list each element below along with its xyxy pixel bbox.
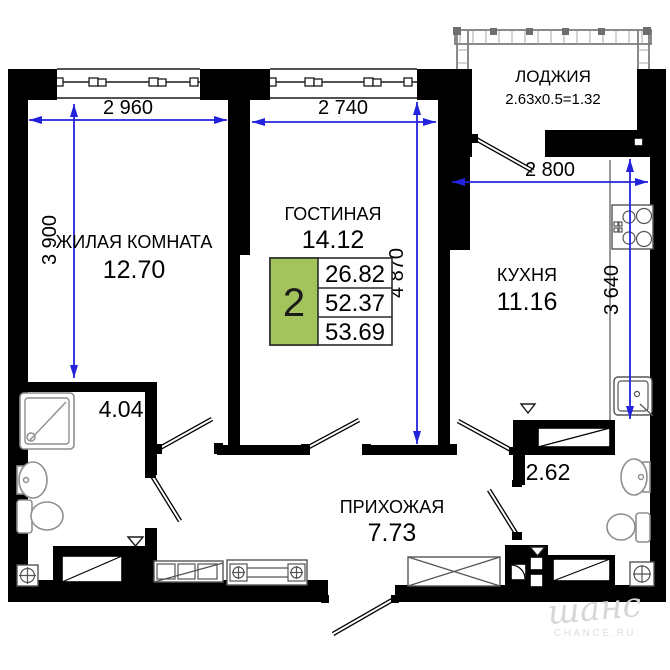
dim-label: 2 740 bbox=[318, 97, 368, 119]
threshold-marker-icon bbox=[128, 537, 143, 546]
door-bathroom-icon bbox=[145, 470, 180, 521]
floor-plan-drawing: 2 960 3 900 2 740 4 870 2 800 3 640 bbox=[0, 0, 670, 670]
ventilation-grille-icon bbox=[17, 565, 38, 586]
room-area-bathroom: 4.04 bbox=[99, 396, 144, 422]
wc-toilet-icon bbox=[607, 513, 650, 542]
room-label-hallway: ПРИХОЖАЯ bbox=[340, 497, 445, 517]
laundry-niche-icon bbox=[62, 556, 122, 582]
threshold-marker-icon bbox=[521, 404, 535, 413]
stove-icon bbox=[612, 205, 653, 249]
room-area-loggia: 2.63x0.5=1.32 bbox=[505, 91, 601, 108]
room-area-wc: 2.62 bbox=[526, 459, 571, 485]
summary-value: 52.37 bbox=[325, 290, 385, 317]
room-area-living: 12.70 bbox=[103, 256, 166, 284]
window-living-icon bbox=[55, 69, 200, 98]
wardrobe-icon bbox=[408, 557, 500, 586]
kitchen-sink-icon bbox=[614, 377, 653, 416]
room-area-hallway: 7.73 bbox=[368, 519, 417, 547]
wc-sink-icon bbox=[621, 459, 650, 495]
door-wc-icon bbox=[489, 480, 522, 540]
summary-value: 53.69 bbox=[325, 319, 385, 346]
shoe-cabinet-icon bbox=[154, 561, 223, 582]
room-label-kitchen: КУХНЯ bbox=[497, 265, 557, 285]
floor-plan: 2 960 3 900 2 740 4 870 2 800 3 640 bbox=[0, 0, 670, 670]
window-lounge-icon bbox=[268, 69, 417, 98]
dim-label: 3 640 bbox=[601, 265, 623, 315]
watermark-site: CHANCE.RU bbox=[554, 628, 636, 639]
room-label-loggia: ЛОДЖИЯ bbox=[515, 67, 591, 86]
wc-ventilation-grille-icon bbox=[630, 562, 654, 586]
dim-label: 2 800 bbox=[525, 159, 575, 181]
storage-niche-icon bbox=[553, 559, 610, 581]
rooms-count: 2 bbox=[283, 281, 305, 325]
door-living-icon bbox=[154, 419, 212, 454]
room-label-living: ЖИЛАЯ КОМНАТА bbox=[56, 232, 213, 252]
toilet-icon bbox=[17, 500, 63, 533]
room-label-lounge: ГОСТИНАЯ bbox=[284, 204, 381, 224]
shower-icon bbox=[20, 393, 74, 449]
room-area-lounge: 14.12 bbox=[302, 226, 365, 254]
door-loggia-icon bbox=[469, 134, 533, 171]
summary-value: 26.82 bbox=[325, 261, 385, 288]
summary-box: 2 26.82 52.37 53.69 bbox=[270, 258, 392, 346]
dim-label: 2 960 bbox=[103, 97, 153, 119]
door-entrance-icon bbox=[321, 595, 399, 634]
closet-niche-icon bbox=[538, 428, 610, 447]
sink-icon bbox=[17, 462, 47, 498]
watermark: шанс CHANCE.RU bbox=[546, 585, 643, 639]
riser-unit-icon bbox=[227, 560, 307, 585]
room-area-kitchen: 11.16 bbox=[497, 288, 558, 316]
watermark-logo: шанс bbox=[546, 585, 643, 633]
